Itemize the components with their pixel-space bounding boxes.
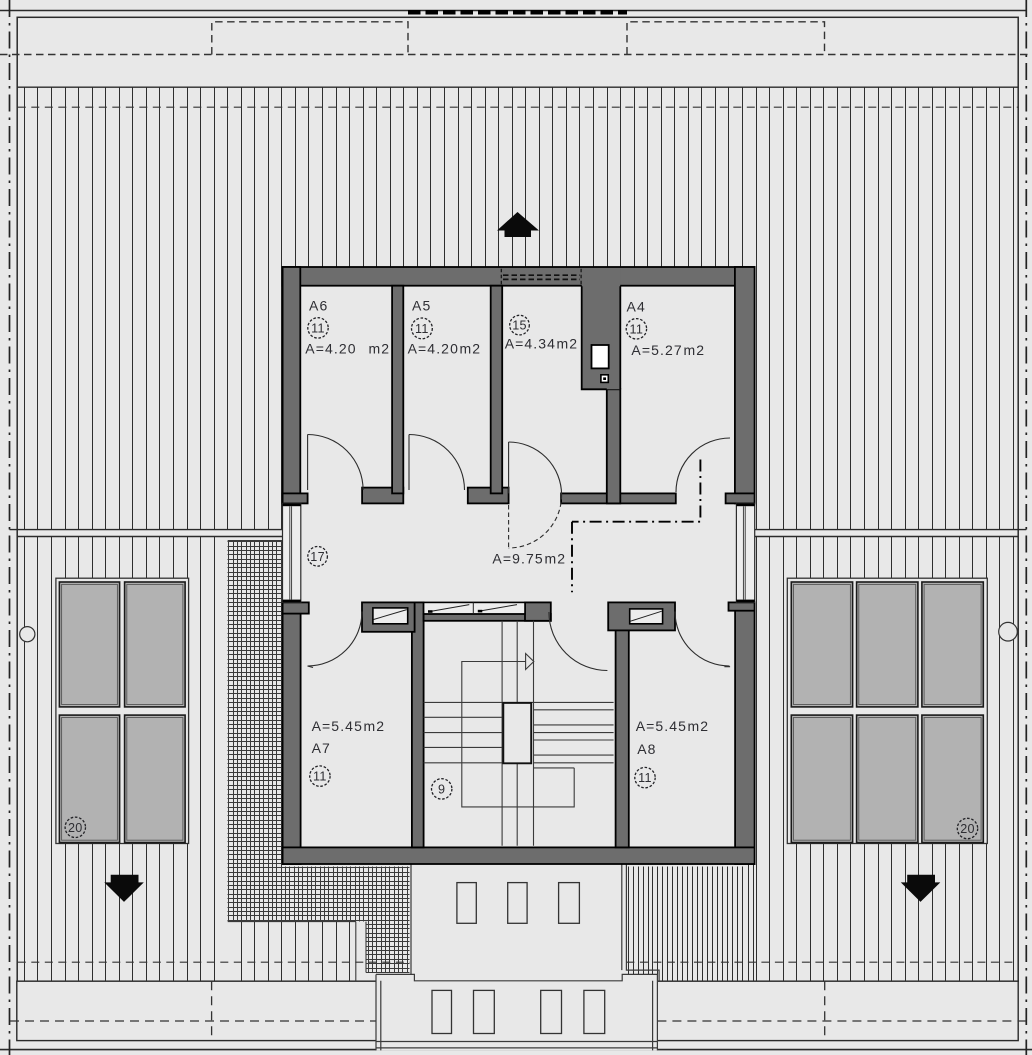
svg-text:11: 11 xyxy=(311,321,325,335)
svg-text:17: 17 xyxy=(310,550,325,564)
svg-text:m2: m2 xyxy=(545,551,567,567)
svg-text:A=5.45: A=5.45 xyxy=(636,718,687,734)
svg-text:A7: A7 xyxy=(312,740,331,756)
svg-text:A=4.34: A=4.34 xyxy=(505,336,556,352)
svg-text:m2: m2 xyxy=(688,718,710,734)
svg-text:A=9.75: A=9.75 xyxy=(492,551,543,567)
svg-text:m2: m2 xyxy=(460,341,482,357)
svg-text:m2: m2 xyxy=(369,341,391,357)
svg-text:11: 11 xyxy=(638,771,652,785)
svg-text:20: 20 xyxy=(960,822,975,836)
svg-text:11: 11 xyxy=(415,322,429,336)
svg-text:9: 9 xyxy=(438,782,445,796)
svg-text:15: 15 xyxy=(512,319,527,333)
svg-text:A=4.20: A=4.20 xyxy=(305,341,356,357)
svg-text:A=4.20: A=4.20 xyxy=(408,341,459,357)
svg-text:A=5.45: A=5.45 xyxy=(312,718,363,734)
svg-text:11: 11 xyxy=(630,322,644,336)
svg-text:A=5.27: A=5.27 xyxy=(631,342,682,358)
svg-text:A6: A6 xyxy=(309,298,328,314)
svg-text:20: 20 xyxy=(68,821,83,835)
svg-text:A4: A4 xyxy=(627,299,646,315)
svg-text:A5: A5 xyxy=(412,298,431,314)
svg-text:m2: m2 xyxy=(557,336,579,352)
svg-text:A8: A8 xyxy=(637,741,656,757)
svg-text:11: 11 xyxy=(313,770,327,784)
svg-text:m2: m2 xyxy=(364,718,386,734)
svg-text:m2: m2 xyxy=(684,342,706,358)
